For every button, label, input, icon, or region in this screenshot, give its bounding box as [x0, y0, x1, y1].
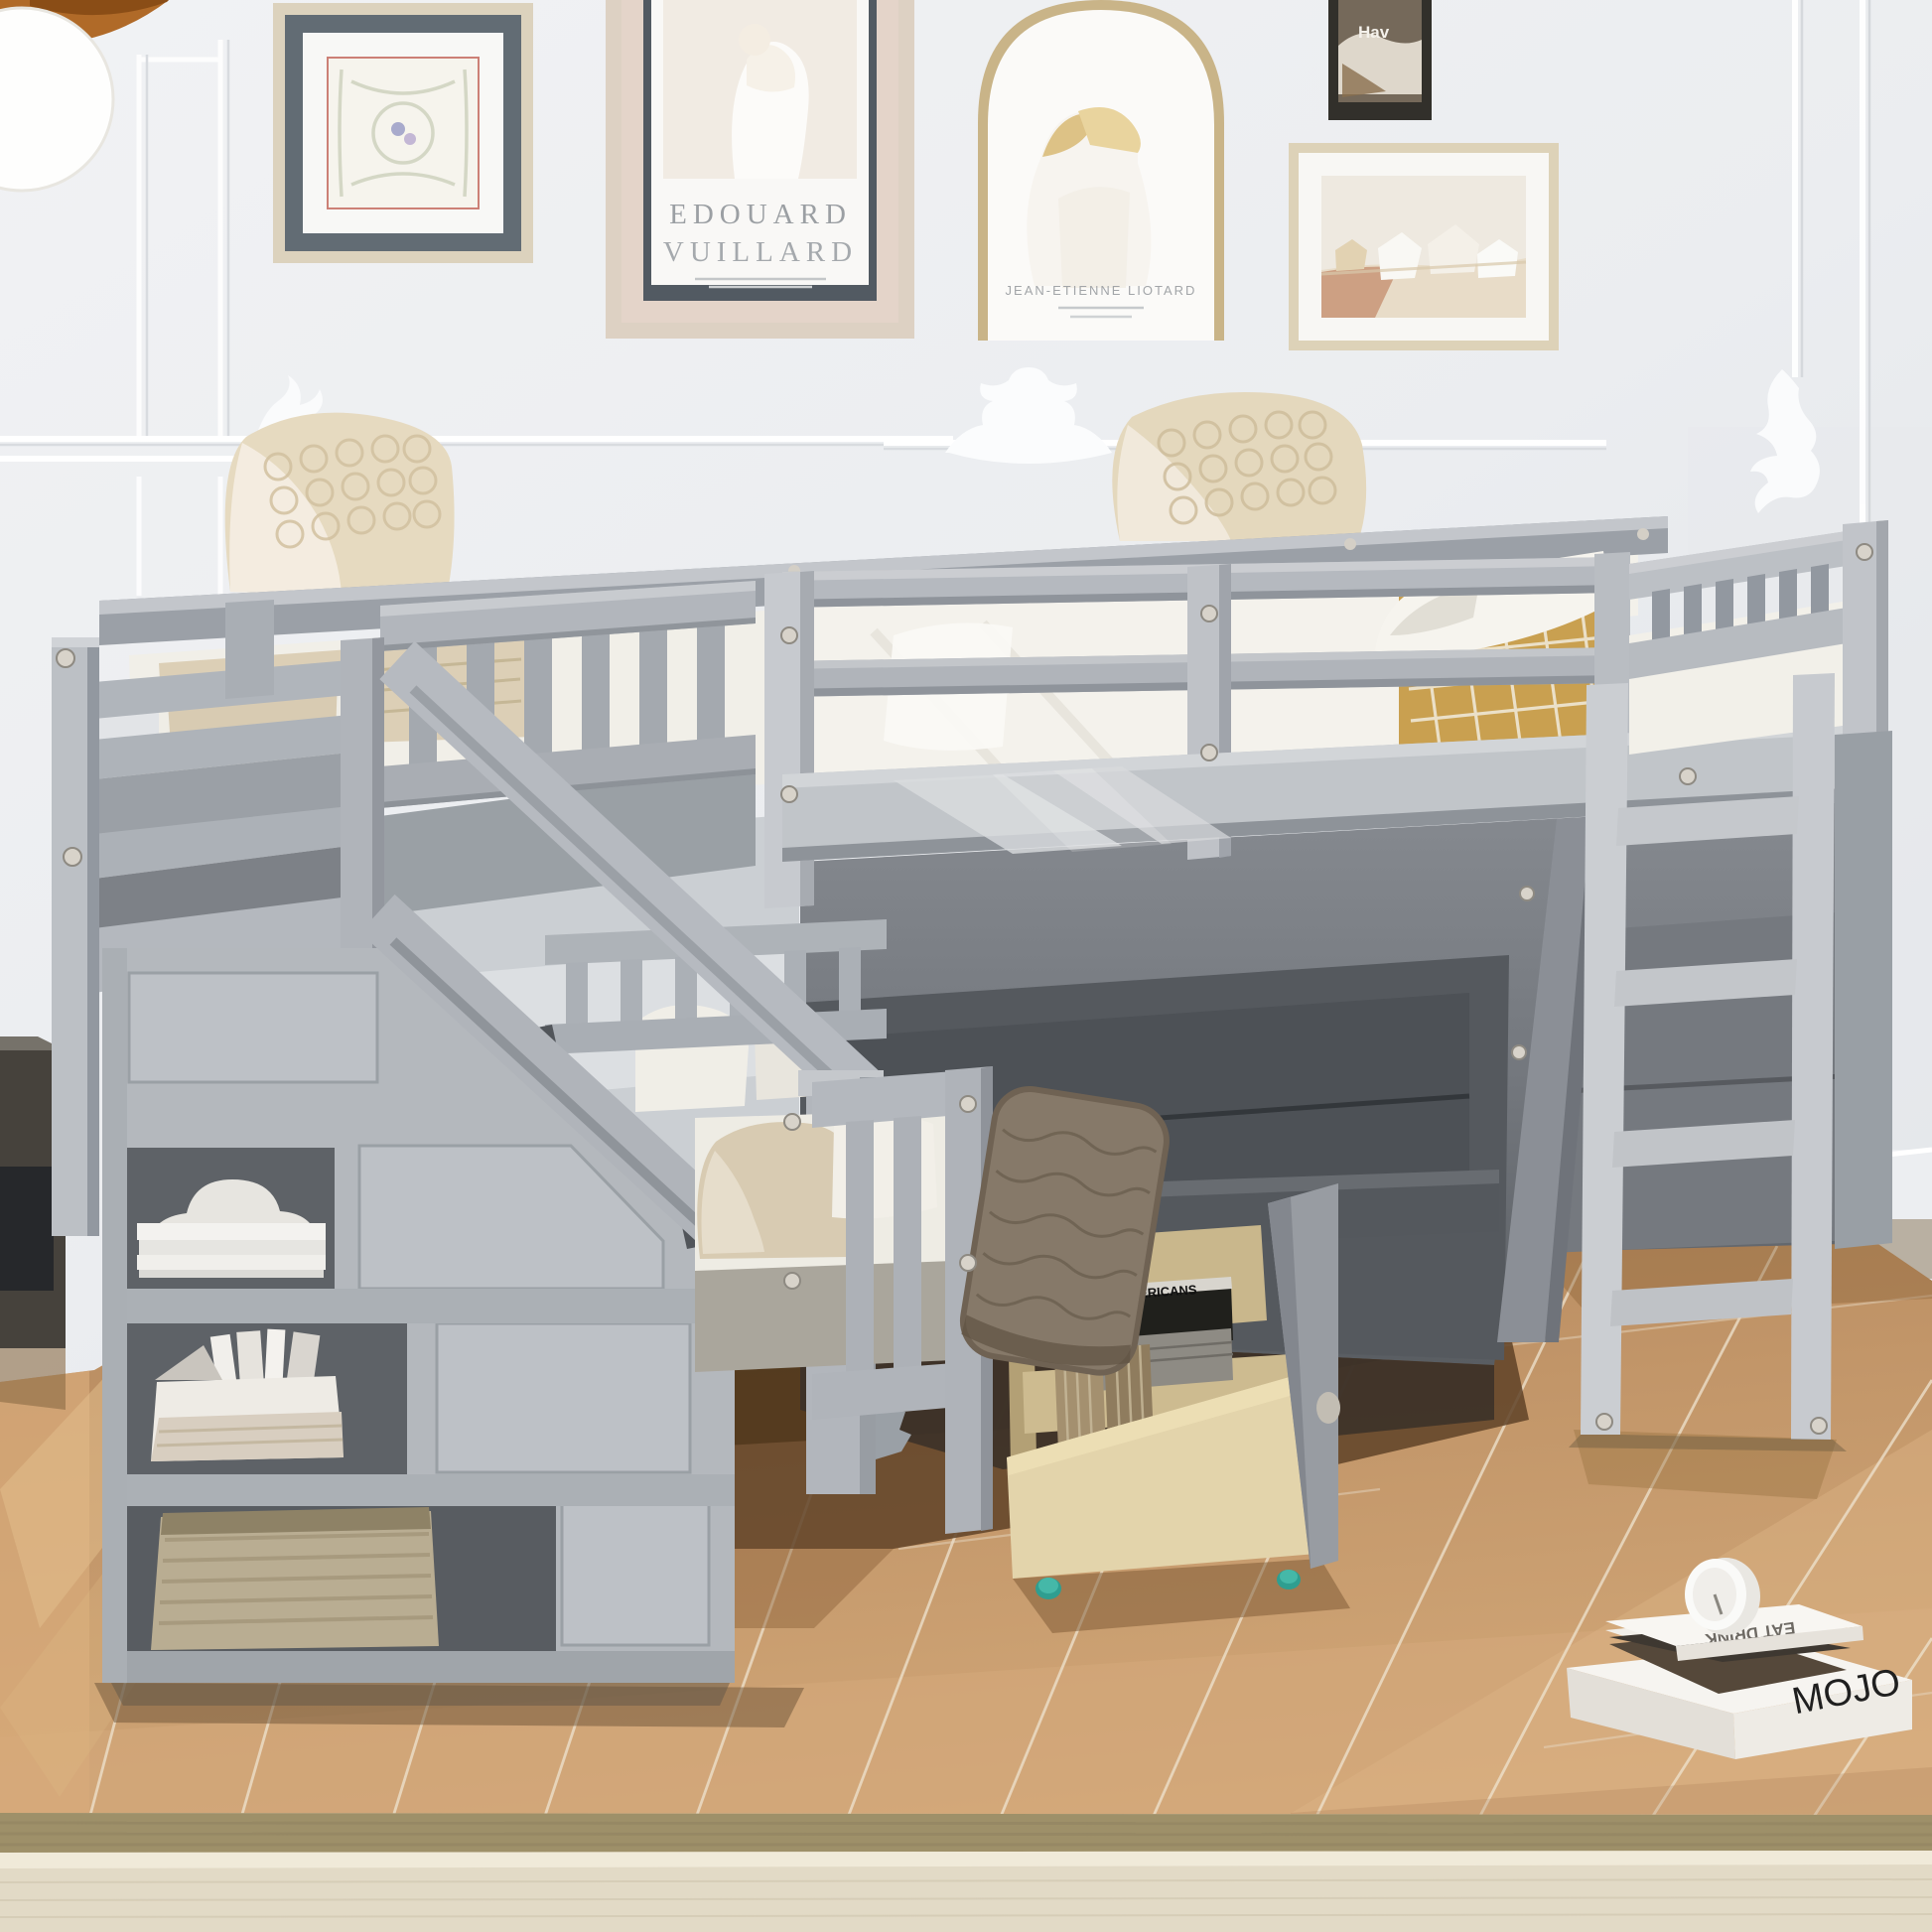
svg-text:JEAN-ETIENNE LIOTARD: JEAN-ETIENNE LIOTARD	[1006, 283, 1197, 298]
svg-text:Hav: Hav	[1358, 23, 1390, 42]
svg-text:EDOUARD: EDOUARD	[669, 199, 852, 230]
svg-text:VUILLARD: VUILLARD	[663, 236, 858, 268]
